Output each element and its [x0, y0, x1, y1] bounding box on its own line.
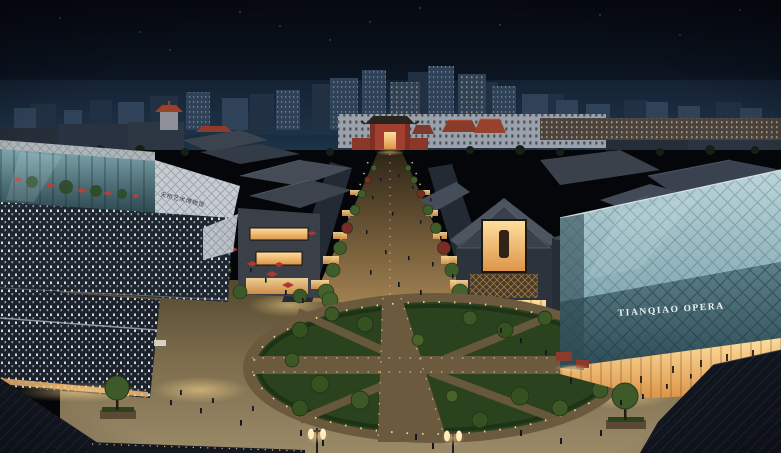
scene: Tianqiao district — aerial night renderi…: [0, 0, 781, 453]
vignette: [0, 0, 781, 453]
rendering-canvas: Tianqiao district — aerial night renderi…: [0, 0, 781, 453]
